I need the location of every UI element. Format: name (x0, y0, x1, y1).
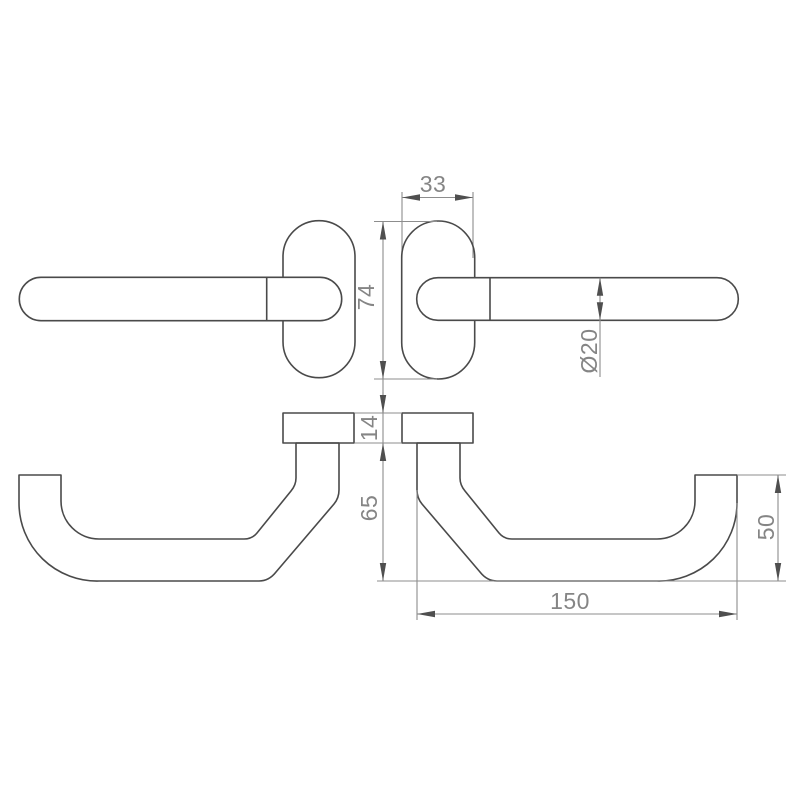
dim-text-handle-drop: 65 (356, 495, 382, 522)
front-view-left-handle (19, 413, 354, 581)
arrowhead-150-left (417, 611, 435, 617)
arrowhead-33-left (402, 194, 420, 200)
arrowhead-50-down (775, 563, 781, 581)
dim-text-lever-diameter: Ø20 (576, 329, 602, 374)
arrowhead-74-bottom (380, 361, 386, 379)
dim-text-grip-end-height: 50 (753, 514, 779, 541)
lever-bar-left (19, 277, 341, 320)
drawing-sheet: 33 74 Ø20 14 65 50 (0, 0, 800, 800)
dimension-rose-height: 74 (353, 222, 437, 582)
arrowhead-14-down (380, 395, 386, 413)
arrowhead-33-right (455, 194, 473, 200)
front-view-right-handle (402, 413, 737, 581)
dim-text-rose-height: 74 (353, 284, 379, 311)
dimension-rose-width: 33 (402, 171, 473, 201)
rose-side-right (402, 413, 473, 443)
top-view-right-handle (402, 192, 739, 379)
dim-text-handle-length: 150 (550, 588, 590, 614)
lever-bar-right (417, 278, 739, 321)
rose-side-left (283, 413, 354, 443)
arrowhead-14-65-up (380, 443, 386, 461)
handle-outline-right (417, 443, 737, 581)
dim-text-rose-width: 33 (420, 171, 447, 197)
arrowhead-65-down (380, 563, 386, 581)
dimension-grip-end-height: 50 (737, 475, 786, 581)
technical-drawing-canvas: 33 74 Ø20 14 65 50 (0, 0, 800, 800)
dim-text-rose-thickness: 14 (356, 415, 382, 442)
handle-outline-left (19, 443, 339, 581)
dimension-rose-thickness: 14 (355, 392, 402, 461)
arrowhead-74-top (380, 222, 386, 240)
top-view-left-handle (19, 221, 355, 378)
dimension-handle-drop: 65 (356, 495, 786, 581)
arrowhead-50-up (775, 475, 781, 493)
arrowhead-150-right (719, 611, 737, 617)
